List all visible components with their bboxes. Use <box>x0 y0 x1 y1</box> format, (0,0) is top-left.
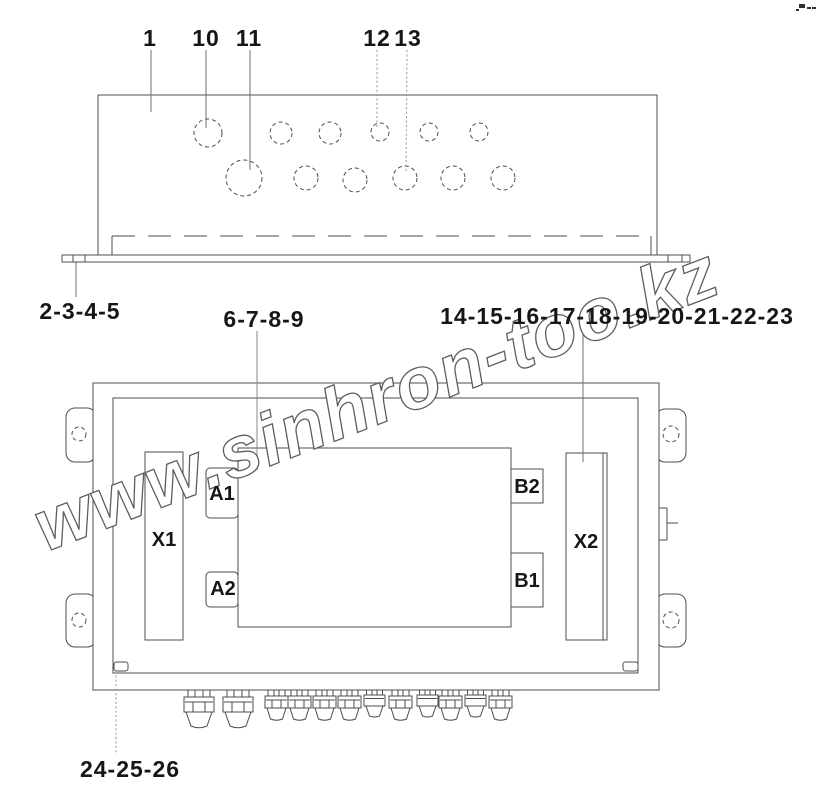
cable-gland <box>439 690 462 720</box>
mounting-ear-bottom-left <box>66 594 96 647</box>
mounting-ear-bottom-right <box>656 594 686 647</box>
cable-gland-row <box>184 690 512 728</box>
hole <box>491 166 515 190</box>
hole <box>470 123 488 141</box>
ear-hole <box>663 612 679 628</box>
cable-gland <box>389 690 412 720</box>
label-a2: A2 <box>210 578 236 600</box>
ear-hole <box>663 426 679 442</box>
callout-6-9: 6-7-8-9 <box>223 306 304 332</box>
hole <box>343 168 367 192</box>
callout-12: 12 <box>363 25 391 51</box>
callout-24-26: 24-25-26 <box>80 756 180 782</box>
cable-gland <box>417 690 438 717</box>
corner-artifact <box>796 4 816 11</box>
mounting-ear-top-left <box>66 408 96 462</box>
top-view <box>62 95 690 262</box>
enclosure-body <box>98 95 657 255</box>
callout-1: 1 <box>143 25 157 51</box>
mounting-ear-top-right <box>656 409 686 462</box>
ear-hole <box>72 613 86 627</box>
technical-drawing-page: www.sinhron-too.kz 1 10 11 12 13 2-3-4-5… <box>0 0 817 797</box>
callout-13: 13 <box>394 25 422 51</box>
hole <box>441 166 465 190</box>
cable-gland <box>313 690 336 720</box>
callout-14-23: 14-15-16-17-18-19-20-21-22-23 <box>440 303 794 329</box>
cable-gland <box>184 690 214 728</box>
ground-tab <box>659 508 678 540</box>
cable-gland <box>465 690 486 717</box>
cable-gland <box>223 690 253 728</box>
hole-13 <box>393 166 417 190</box>
hole <box>319 122 341 144</box>
junction-box-diagram: www.sinhron-too.kz 1 10 11 12 13 2-3-4-5… <box>0 0 817 797</box>
hole-12 <box>371 123 389 141</box>
label-a1: A1 <box>209 483 235 505</box>
leader-13 <box>406 50 407 172</box>
cable-gland <box>288 690 311 720</box>
hole <box>294 166 318 190</box>
cable-gland <box>364 690 385 717</box>
label-b1: B1 <box>514 570 540 592</box>
label-b2: B2 <box>514 476 540 498</box>
cable-gland <box>489 690 512 720</box>
cable-gland <box>265 690 288 720</box>
cable-gland <box>338 690 361 720</box>
hole <box>420 123 438 141</box>
hole-11 <box>226 160 262 196</box>
hole <box>270 122 292 144</box>
callout-2-5: 2-3-4-5 <box>39 298 120 324</box>
callout-11: 11 <box>236 25 262 51</box>
callout-10: 10 <box>192 25 220 51</box>
label-x1: X1 <box>152 529 176 551</box>
label-x2: X2 <box>574 531 598 553</box>
mounting-flange <box>62 255 690 262</box>
ear-hole <box>72 427 86 441</box>
hole-10 <box>194 119 222 147</box>
